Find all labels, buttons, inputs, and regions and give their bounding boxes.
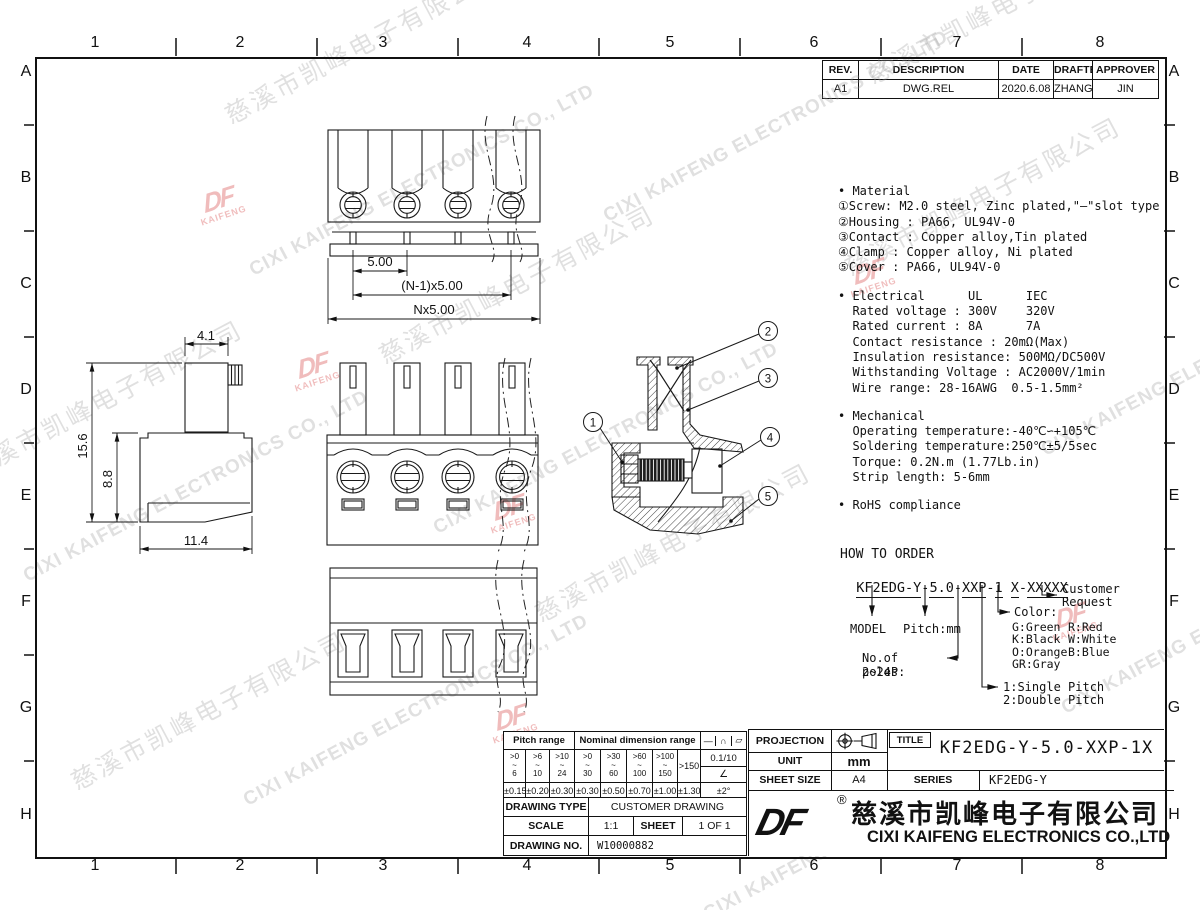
straightness-icon: — <box>701 736 716 746</box>
tol-ratio: 0.1/10 <box>701 750 746 767</box>
tol-symbols-cell: — ∩ ▱ <box>701 732 747 750</box>
zone-col-label: 2 <box>220 34 260 52</box>
order-label-poles-range: 2~24P <box>862 665 898 679</box>
color-item: B:Blue <box>1068 646 1110 658</box>
zone-row-label: A <box>18 63 34 81</box>
top-view-dimensions: 5.00 (N-1)x5.00 Nx5.00 <box>328 250 540 324</box>
registered-trademark-icon: ® <box>837 792 847 807</box>
spec-line: Torque: 0.2N.m (1.77Lb.in) <box>838 455 1165 470</box>
zone-row-label: E <box>1166 487 1182 505</box>
zone-row-label: B <box>18 169 34 187</box>
spec-line: ③Contact : Copper alloy,Tin plated <box>838 230 1165 245</box>
spec-block: • Material ①Screw: M2.0 steel, Zinc plat… <box>838 184 1165 514</box>
tol-range: >10~24 <box>550 750 575 783</box>
order-label-color: Color: <box>1014 605 1057 619</box>
zone-col-label: 7 <box>937 857 977 875</box>
bottom-view <box>330 568 537 695</box>
unit-value: mm <box>831 752 888 771</box>
spec-line: Operating temperature:-40℃∽+105℃ <box>838 424 1165 439</box>
zone-col-label: 1 <box>75 857 115 875</box>
order-dash: - <box>954 580 962 596</box>
color-item: GR:Gray <box>1012 658 1068 670</box>
tol-range: >30~60 <box>601 750 627 783</box>
tolerance-table: Pitch range Nominal dimension range — ∩ … <box>503 731 747 799</box>
callout-4: 4 <box>767 433 774 445</box>
order-dash: - <box>986 580 994 596</box>
series-label: SERIES <box>887 770 980 791</box>
dim-w-bottom: 11.4 <box>184 533 208 548</box>
zone-row-label: A <box>1166 63 1182 81</box>
arc-icon: ∩ <box>716 736 731 746</box>
zone-col-label: 3 <box>363 34 403 52</box>
spec-line: Rated current : 8A 7A <box>838 319 1165 334</box>
tol-pitch-header: Pitch range <box>504 732 575 750</box>
zone-row-label: D <box>1166 381 1182 399</box>
sheet-size-value: A4 <box>831 770 888 791</box>
order-seg-pitch: 5.0 <box>929 580 953 598</box>
company-logo-icon: DF <box>752 802 807 845</box>
zone-col-label: 1 <box>75 34 115 52</box>
dim-pitch: 5.00 <box>367 254 392 269</box>
order-space <box>1003 580 1011 596</box>
sheet-size-label: SHEET SIZE <box>749 770 832 791</box>
side-view <box>140 363 252 522</box>
zone-row-label: C <box>18 275 34 293</box>
order-label-customer-1: Customer <box>1062 582 1120 596</box>
section-view <box>612 357 743 534</box>
first-angle-projection-icon <box>835 732 883 750</box>
color-item: W:White <box>1068 633 1116 645</box>
engineering-drawing-sheet: { "watermark": {"zh": "慈溪市凯峰电子有限公司", "en… <box>0 0 1200 910</box>
tol-range: >100~150 <box>653 750 678 783</box>
tol-range-max: >150 <box>678 750 701 783</box>
order-color-list: G:GreenR:Red K:BlackW:White O:OrangeB:Bl… <box>1012 621 1116 671</box>
zone-col-label: 7 <box>937 34 977 52</box>
drawing-type-label: DRAWING TYPE <box>504 798 589 817</box>
drawing-info-table: DRAWING TYPE CUSTOMER DRAWING SCALE 1:1 … <box>503 797 747 856</box>
order-code: KF2EDG-Y-5.0-XXP-1 X-XXXXX <box>840 564 1068 596</box>
zone-row-label: G <box>1166 699 1182 717</box>
drawing-type-value: CUSTOMER DRAWING <box>589 798 747 817</box>
spec-line: ④Clamp : Copper alloy, Ni plated <box>838 245 1165 260</box>
zone-row-label: D <box>18 381 34 399</box>
spec-line: Wire range: 28-16AWG 0.5-1.5mm² <box>838 381 1165 396</box>
zone-row-label: G <box>18 699 34 717</box>
title-value: KF2EDG-Y-5.0-XXP-1X <box>929 738 1164 758</box>
zone-col-label: 5 <box>650 34 690 52</box>
top-view <box>328 130 540 256</box>
dim-pitch-n1: (N-1)x5.00 <box>401 278 462 293</box>
drawing-no-value: W10000882 <box>589 836 747 856</box>
zone-row-label: F <box>1166 593 1182 611</box>
dim-pitch-n: Nx5.00 <box>413 302 454 317</box>
zone-col-label: 8 <box>1080 857 1120 875</box>
scale-label: SCALE <box>504 817 589 836</box>
callout-3: 3 <box>765 374 771 386</box>
spec-line: Withstanding Voltage : AC2000V/1min <box>838 365 1165 380</box>
zone-col-label: 8 <box>1080 34 1120 52</box>
tol-range: >6~10 <box>526 750 550 783</box>
order-seg-model: KF2EDG-Y <box>856 580 921 598</box>
tol-nominal-header: Nominal dimension range <box>575 732 701 750</box>
title-cell: TITLE KF2EDG-Y-5.0-XXP-1X <box>887 730 1164 771</box>
callout-2: 2 <box>765 327 771 339</box>
dim-w-top: 4.1 <box>197 328 215 343</box>
order-seg-pitchtype: 1 <box>995 580 1003 598</box>
zone-row-label: E <box>18 487 34 505</box>
rohs-line: • RoHS compliance <box>838 498 1165 513</box>
sheet-value: 1 OF 1 <box>683 817 747 836</box>
callout-5: 5 <box>765 492 771 504</box>
title-label: TITLE <box>889 732 931 748</box>
order-seg-color: X <box>1011 580 1019 598</box>
zone-row-label: B <box>1166 169 1182 187</box>
angle-icon: ∠ <box>701 767 746 782</box>
spec-line: • Mechanical <box>838 409 1165 424</box>
zone-row-label: F <box>18 593 34 611</box>
spec-line: Insulation resistance: 500MΩ/DC500V <box>838 350 1165 365</box>
dim-h-body: 8.8 <box>100 470 115 488</box>
company-name-en: CIXI KAIFENG ELECTRONICS CO.,LTD <box>867 828 1170 847</box>
zone-row-label: H <box>18 806 34 824</box>
flatness-icon: ▱ <box>732 735 746 746</box>
order-dash: - <box>1019 580 1027 596</box>
series-value-text: KF2EDG-Y <box>989 773 1047 787</box>
title-block: PROJECTION UNIT mm SHEET SIZE A4 TITLE K… <box>748 729 1164 856</box>
tol-ratio-angle-cell: 0.1/10 ∠ <box>701 750 747 783</box>
projection-label: PROJECTION <box>749 730 832 753</box>
zone-col-label: 4 <box>507 857 547 875</box>
projection-symbol-cell <box>831 730 888 753</box>
tol-range: >60~100 <box>627 750 653 783</box>
spec-line: ②Housing : PA66, UL94V-0 <box>838 215 1165 230</box>
zone-col-label: 3 <box>363 857 403 875</box>
zone-row-label: C <box>1166 275 1182 293</box>
tol-range: >0~6 <box>504 750 526 783</box>
spec-line: ⑤Cover : PA66, UL94V-0 <box>838 260 1165 275</box>
zone-col-label: 5 <box>650 857 690 875</box>
spec-line: • Electrical UL IEC <box>838 289 1165 304</box>
mechanical-section: • Mechanical Operating temperature:-40℃∽… <box>838 409 1165 485</box>
unit-label: UNIT <box>749 752 832 771</box>
zone-col-label: 4 <box>507 34 547 52</box>
material-section: • Material ①Screw: M2.0 steel, Zinc plat… <box>838 184 1165 276</box>
company-name-zh: 慈溪市凯峰电子有限公司 <box>851 794 1159 831</box>
order-label-single-pitch: 1:Single Pitch <box>1003 680 1104 694</box>
color-item: K:Black <box>1012 633 1068 645</box>
order-label-pitch: Pitch:mm <box>903 622 961 636</box>
color-row: GR:Gray <box>1012 658 1116 670</box>
order-seg-poles: XXP <box>962 580 986 598</box>
order-label-double-pitch: 2:Double Pitch <box>1003 693 1104 707</box>
order-label-customer-2: Request <box>1062 595 1113 609</box>
tol-range: >0~30 <box>575 750 601 783</box>
zone-row-label: H <box>1166 806 1182 824</box>
spec-line: ①Screw: M2.0 steel, Zinc plated,"—"slot … <box>838 199 1165 214</box>
electrical-section: • Electrical UL IEC Rated voltage : 300V… <box>838 289 1165 396</box>
color-row: K:BlackW:White <box>1012 633 1116 645</box>
spec-line: • Material <box>838 184 1165 199</box>
dim-h-total: 15.6 <box>75 433 90 458</box>
spec-line: Strip length: 5-6mm <box>838 470 1165 485</box>
spec-line: Soldering temperature:250℃±5/5sec <box>838 439 1165 454</box>
zone-col-label: 2 <box>220 857 260 875</box>
how-to-order-title: HOW TO ORDER <box>840 547 934 562</box>
side-view-dimensions: 4.1 15.6 8.8 11.4 <box>75 328 252 554</box>
callout-1: 1 <box>590 418 596 430</box>
scale-value: 1:1 <box>589 817 634 836</box>
spec-line: Rated voltage : 300V 320V <box>838 304 1165 319</box>
order-label-model: MODEL <box>850 622 886 636</box>
zone-col-label: 6 <box>794 857 834 875</box>
sheet-label: SHEET <box>634 817 683 836</box>
company-block: DF ® 慈溪市凯峰电子有限公司 CIXI KAIFENG ELECTRONIC… <box>749 790 1164 856</box>
drawing-no-label: DRAWING NO. <box>504 836 589 856</box>
spec-line: Contact resistance : 20mΩ(Max) <box>838 335 1165 350</box>
series-value: KF2EDG-Y <box>979 770 1174 791</box>
front-view <box>327 363 538 545</box>
zone-col-label: 6 <box>794 34 834 52</box>
